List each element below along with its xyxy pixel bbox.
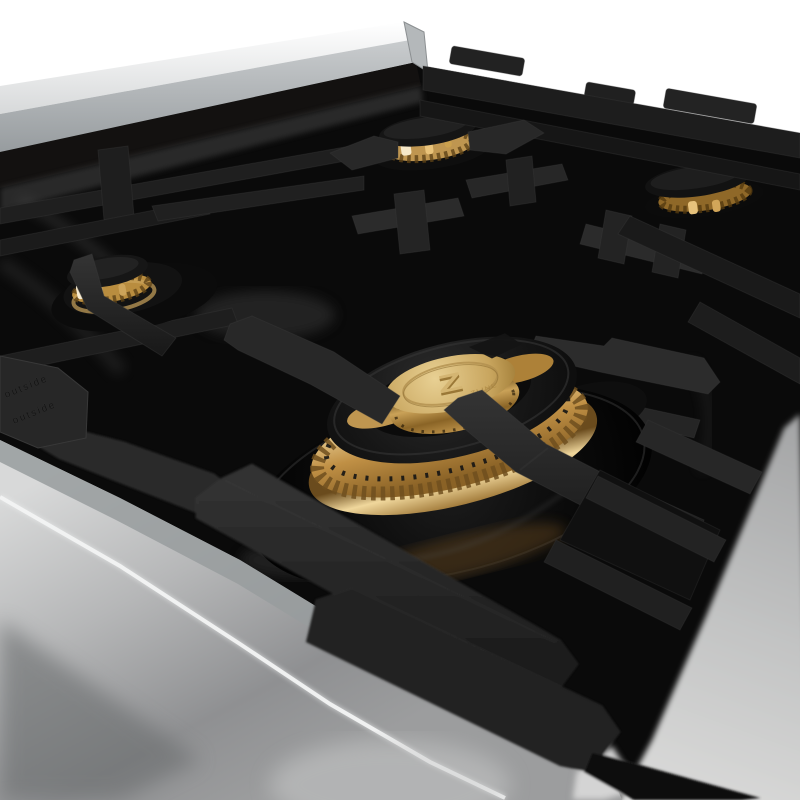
grate-cross-post bbox=[394, 190, 430, 254]
screenshot-root: Z Z ZLINE outside bbox=[0, 0, 800, 800]
grate-cross-post bbox=[98, 146, 134, 220]
grate-cross-post bbox=[506, 156, 536, 206]
product-photo-gas-rangetop: Z Z ZLINE outside bbox=[0, 0, 800, 800]
